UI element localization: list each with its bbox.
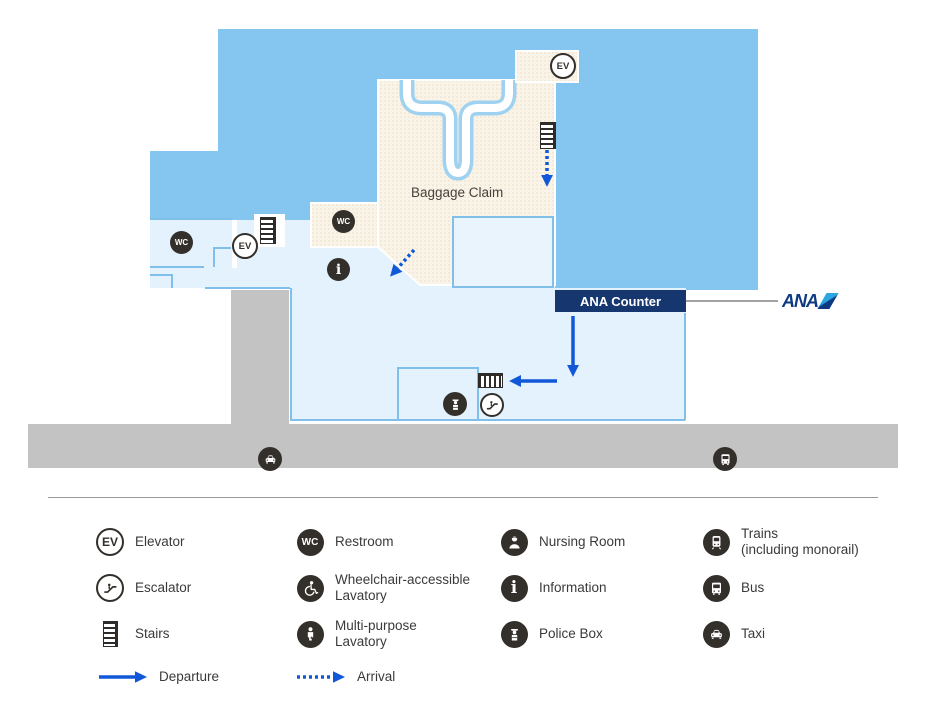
restroom-icon: WC (332, 210, 355, 233)
ana-logo: ANA (782, 291, 834, 311)
legend-label: Departure (159, 669, 219, 685)
baggage-claim-label: Baggage Claim (411, 185, 503, 200)
multipurpose-icon (297, 621, 324, 648)
stairs-icon (260, 217, 276, 244)
legend-label: Stairs (135, 626, 170, 642)
access-road (28, 424, 898, 468)
legend-item-multipurpose-lavatory: Multi-purposeLavatory (296, 620, 417, 648)
restroom-icon: WC (297, 529, 324, 556)
information-icon: i (327, 258, 350, 281)
legend-label: Elevator (135, 534, 185, 550)
legend-label: Information (539, 580, 607, 596)
arrival-arrow (296, 670, 346, 684)
taxi-icon (703, 621, 730, 648)
legend-label: Bus (741, 580, 764, 596)
back-office-room (453, 217, 553, 287)
legend-item-trains: Trains(including monorail) (702, 528, 859, 556)
legend-item-bus: Bus (702, 574, 764, 602)
legend-label: Restroom (335, 534, 394, 550)
stairs-icon (540, 122, 556, 149)
legend-item-arrival: Arrival (296, 663, 395, 691)
ana-logo-text: ANA (782, 291, 818, 312)
legend-item-departure: Departure (98, 663, 219, 691)
legend-label: Multi-purposeLavatory (335, 618, 417, 650)
restroom-icon: WC (170, 231, 193, 254)
legend-item-escalator: Escalator (96, 574, 191, 602)
legend-item-nursing-room: Nursing Room (500, 528, 625, 556)
legend-item-police-box: Police Box (500, 620, 603, 648)
taxi-icon (258, 447, 282, 471)
legend-label: Escalator (135, 580, 191, 596)
ana-counter-badge: ANA Counter (555, 290, 686, 312)
elevator-icon: EV (96, 528, 124, 556)
floor-plan (0, 0, 930, 500)
police-room (398, 368, 478, 420)
bus-icon (703, 575, 730, 602)
legend-label: Wheelchair-accessibleLavatory (335, 572, 470, 604)
escalator-icon (96, 574, 124, 602)
elevator-icon: EV (550, 53, 576, 79)
legend-item-stairs: Stairs (96, 620, 170, 648)
bus-icon (713, 447, 737, 471)
elevator-icon: EV (232, 233, 258, 259)
trains-icon (703, 529, 730, 556)
departure-arrow (98, 670, 148, 684)
wheelchair-icon (297, 575, 324, 602)
ana-counter-label: ANA Counter (580, 294, 661, 309)
legend-label: Trains(including monorail) (741, 526, 859, 558)
police-box-icon (501, 621, 528, 648)
stairs-icon (103, 621, 118, 647)
information-icon: i (501, 575, 528, 602)
stairs-icon (478, 373, 503, 388)
escalator-icon (480, 393, 504, 417)
nursing-room-icon (501, 529, 528, 556)
police-box-icon (443, 392, 467, 416)
legend-label: Nursing Room (539, 534, 625, 550)
legend-item-elevator: EV Elevator (96, 528, 185, 556)
legend-item-taxi: Taxi (702, 620, 765, 648)
legend-label: Arrival (357, 669, 395, 685)
legend-item-wheelchair-lavatory: Wheelchair-accessibleLavatory (296, 574, 470, 602)
legend-label: Police Box (539, 626, 603, 642)
divider (48, 497, 878, 498)
legend-item-restroom: WC Restroom (296, 528, 394, 556)
service-strip (231, 290, 289, 424)
legend-label: Taxi (741, 626, 765, 642)
airport-terminal-map: Baggage Claim ANA Counter ANA WC EV WC i… (0, 0, 930, 711)
legend-item-information: i Information (500, 574, 607, 602)
